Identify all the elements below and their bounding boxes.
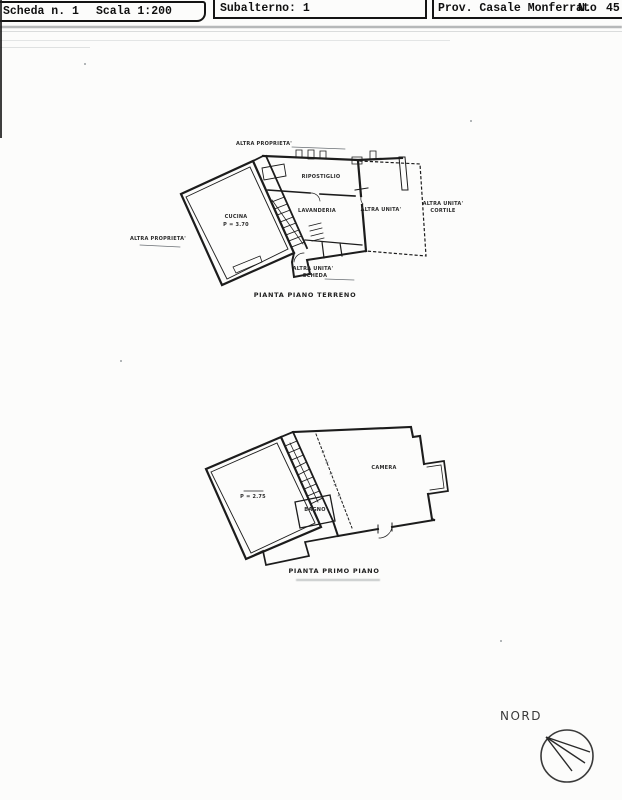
label-cortile-line2: CORTILE (430, 208, 455, 214)
label-ripostiglio: RIPOSTIGLIO (302, 174, 341, 180)
door-arc (311, 193, 320, 201)
plan-drawing-canvas (0, 0, 622, 800)
ground-floor-caption: PIANTA PIANO TERRENO (254, 292, 357, 300)
label-bagno: BAGNO (304, 507, 325, 513)
first-bay-inner (427, 465, 444, 490)
first-camera-exterior-wall (293, 427, 424, 464)
ground-corridor-walls (253, 156, 307, 248)
label-first-room-height: P = 2.75 (240, 494, 266, 500)
label-scheda-line2: SCHEDA (303, 273, 327, 279)
ground-right-party-wall (358, 161, 366, 251)
label-camera: CAMERA (371, 465, 396, 471)
label-altra-proprieta-left: ALTRA PROPRIETA' (130, 236, 186, 242)
first-door-ticks (378, 523, 392, 533)
first-camera-right-lower-wall (428, 494, 434, 520)
label-altra-proprieta-top: ALTRA PROPRIETA' (236, 141, 292, 147)
label-cortile-line1: ALTRA UNITA' (423, 201, 464, 207)
north-compass-icon (541, 730, 593, 782)
door-arc (294, 253, 304, 262)
compass-needle-lines (546, 737, 590, 771)
scanned-cadastral-sheet: Scheda n. 1 Scala 1:200 Subalterno: 1 Pr… (0, 0, 622, 800)
ground-top-exterior-wall (263, 156, 402, 160)
first-floor-caption: PIANTA PRIMO PIANO (288, 568, 379, 576)
door-arc (379, 527, 392, 538)
door-arc (361, 197, 363, 204)
north-label: NORD (500, 710, 542, 722)
first-staircase-rail (290, 443, 318, 502)
ground-small-steps (309, 223, 324, 241)
label-lavanderia: LAVANDERIA (298, 208, 336, 214)
label-room-left-name: CUCINA (225, 214, 248, 220)
label-room-left-height: P = 3.70 (223, 222, 249, 228)
first-bottom-exterior-wall (333, 520, 434, 536)
label-altra-unita: ALTRA UNITA' (361, 207, 402, 213)
label-scheda-line1: ALTRA UNITA' (293, 266, 334, 272)
ground-roof-comb-marks (296, 150, 376, 164)
ground-floor-plan-drawing (140, 147, 426, 285)
ground-window-marking (233, 256, 262, 273)
